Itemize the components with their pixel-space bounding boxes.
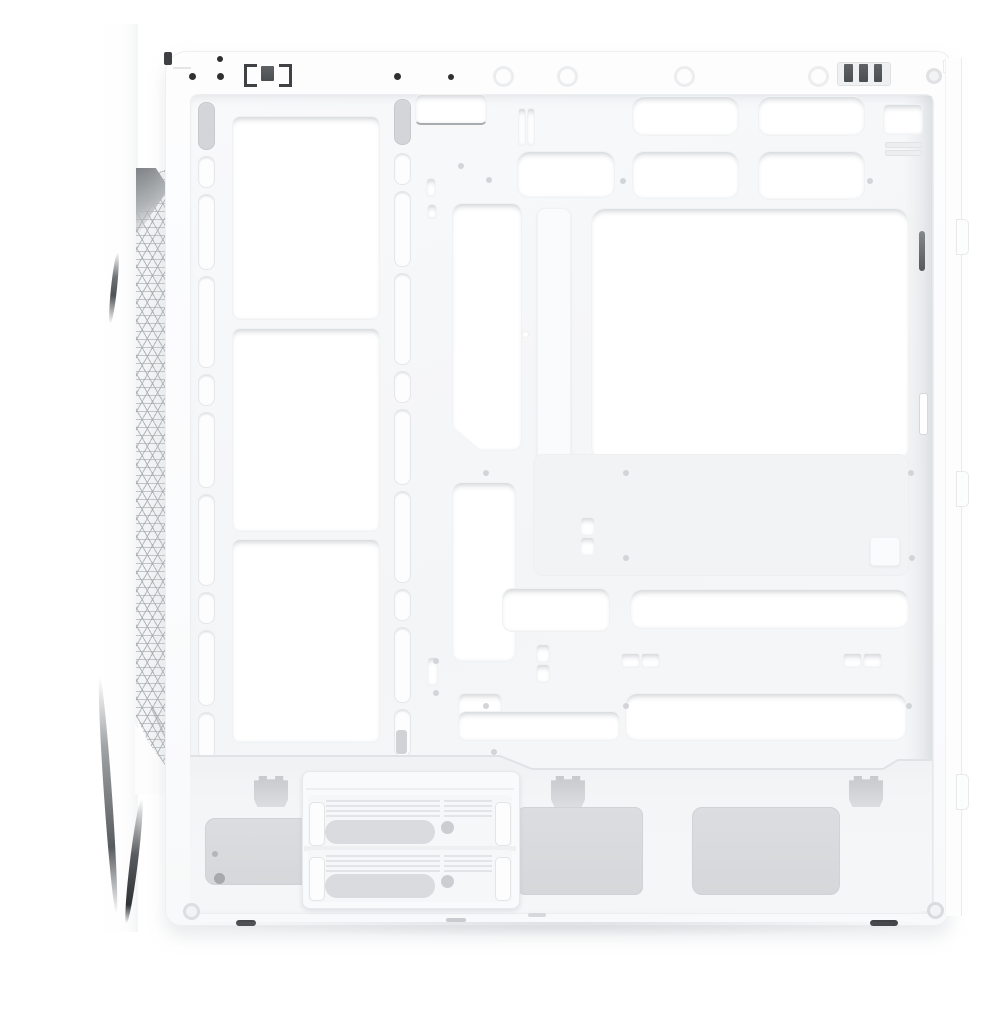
- rail-slot: [394, 99, 411, 145]
- rail-slot: [198, 374, 215, 406]
- fan-opening: [232, 328, 380, 532]
- tie-slot: [426, 178, 436, 197]
- latch-bar: [859, 64, 868, 82]
- rail-slot: [198, 276, 215, 368]
- top-seam-line: [173, 67, 191, 69]
- chamber-screw: [214, 873, 225, 884]
- rail-slot: [394, 153, 411, 185]
- standoff-hole: [433, 690, 439, 696]
- cable-slit: [518, 108, 526, 146]
- side-cable-cutout: [452, 482, 516, 662]
- cage-top-rail-line: [306, 788, 514, 790]
- corner-screw: [183, 903, 200, 920]
- washer-mark: [674, 66, 695, 87]
- rear-edge-tab: [956, 471, 969, 507]
- tie-slot: [843, 653, 862, 668]
- rear-vent-slit: [885, 142, 922, 148]
- washer-mark: [493, 66, 514, 87]
- tray-ridges: [444, 855, 492, 875]
- washer-mark: [557, 66, 578, 87]
- foot-mark: [528, 913, 546, 917]
- tray-thumb-hole: [441, 875, 454, 888]
- cable-grommet-top: [758, 96, 865, 136]
- pc-case-photo: Empty white ATX chassis: front mesh vent…: [40, 16, 1000, 1016]
- standoff-hole: [623, 470, 629, 476]
- latch-bar: [844, 64, 853, 82]
- standoff-hole: [906, 703, 912, 709]
- top-panel-latch-block: [261, 66, 274, 81]
- cable-grommet-mid: [632, 151, 739, 199]
- rail-slot: [394, 589, 411, 621]
- rail-slot: [198, 156, 215, 188]
- cable-grommet-mid: [517, 151, 615, 198]
- rail-slot: [198, 494, 215, 586]
- rear-light-slot: [919, 393, 928, 435]
- rear-vent-slit: [885, 150, 922, 156]
- tray-rail: [495, 857, 511, 901]
- small-square-cutout: [870, 537, 900, 566]
- cable-slit: [527, 108, 535, 146]
- rail-slot: [198, 630, 215, 706]
- rail-slot: [394, 409, 411, 485]
- top-panel-latch-left-bracket: [244, 64, 257, 87]
- tray-ridges: [444, 800, 492, 820]
- tie-slot: [580, 537, 595, 556]
- rail-slot: [198, 592, 215, 624]
- side-cable-cutout: [452, 203, 522, 451]
- standoff-hole: [623, 555, 629, 561]
- tray-rail: [309, 857, 325, 901]
- rail-slot: [198, 412, 215, 488]
- tray-opening: [325, 820, 435, 844]
- tie-slot: [621, 653, 640, 668]
- tray-rail: [309, 802, 325, 846]
- screw-hole: [217, 56, 223, 62]
- accessory-hook-cutout: [849, 776, 883, 807]
- rear-edge-tab: [956, 219, 969, 255]
- standoff-hole: [483, 470, 489, 476]
- tie-slot: [641, 653, 660, 668]
- lower-cable-bar: [630, 589, 909, 629]
- rail-slot: [198, 102, 215, 150]
- standoff-hole: [483, 703, 489, 709]
- rear-edge-tab: [956, 774, 969, 810]
- tie-slot: [536, 664, 550, 683]
- screw-hole: [189, 73, 196, 80]
- screw-hole: [448, 74, 454, 80]
- tie-slot: [580, 517, 595, 536]
- standoff-hole: [523, 332, 528, 337]
- tray-recess-plate: [533, 454, 909, 576]
- tray-opening: [325, 874, 435, 898]
- accessory-hook-cutout: [254, 776, 288, 807]
- standoff-hole: [867, 178, 873, 184]
- fan-opening: [232, 539, 380, 743]
- standoff-hole: [620, 178, 626, 184]
- rail-slot: [394, 273, 411, 365]
- cable-grommet-mid: [758, 151, 865, 200]
- ground-shadow: [180, 922, 940, 938]
- corner-screw: [926, 68, 942, 84]
- cable-grommet-top: [632, 96, 739, 136]
- standoff-hole: [458, 163, 464, 169]
- screw-hole: [217, 73, 224, 80]
- tray-ridges: [326, 800, 440, 820]
- top-edge-dark-tab: [164, 52, 172, 65]
- psu-vent-panel: [692, 807, 840, 895]
- screw-hole: [394, 73, 401, 80]
- rail-slot: [394, 627, 411, 703]
- tray-thumb-hole: [441, 821, 454, 834]
- psu-vent-panel: [517, 807, 643, 895]
- tie-slot: [536, 644, 550, 663]
- rail-slot: [198, 194, 215, 270]
- tray-rail: [495, 802, 511, 846]
- standoff-hole: [908, 470, 914, 476]
- rail-slot: [394, 371, 411, 403]
- accessory-hook-cutout: [551, 776, 585, 807]
- tie-slot: [863, 653, 882, 668]
- standoff-hole: [486, 177, 492, 183]
- bottom-cable-grommet: [458, 711, 620, 741]
- side-cable-cutout-arm: [502, 588, 610, 632]
- latch-bar: [874, 64, 882, 82]
- tie-slot: [427, 204, 437, 219]
- standoff-hole: [909, 555, 915, 561]
- bottom-cable-grommet: [625, 693, 907, 741]
- shroud-edge-line: [190, 752, 932, 776]
- rear-dark-slot: [919, 231, 925, 271]
- fan-opening: [232, 116, 380, 320]
- chamber-screw: [212, 851, 218, 857]
- rail-slot: [394, 491, 411, 583]
- rail-slot: [394, 191, 411, 267]
- top-accessory-cutout: [415, 94, 487, 125]
- rear-small-cutout: [883, 104, 923, 135]
- standoff-hole: [433, 658, 439, 664]
- tray-ridges: [326, 855, 440, 875]
- bracket-bottom-clip: [396, 730, 407, 754]
- standoff-hole: [623, 703, 629, 709]
- washer-mark: [808, 66, 829, 87]
- corner-screw: [927, 902, 944, 919]
- cpu-cooler-cutout: [591, 208, 909, 461]
- top-panel-latch-right-bracket: [279, 64, 292, 87]
